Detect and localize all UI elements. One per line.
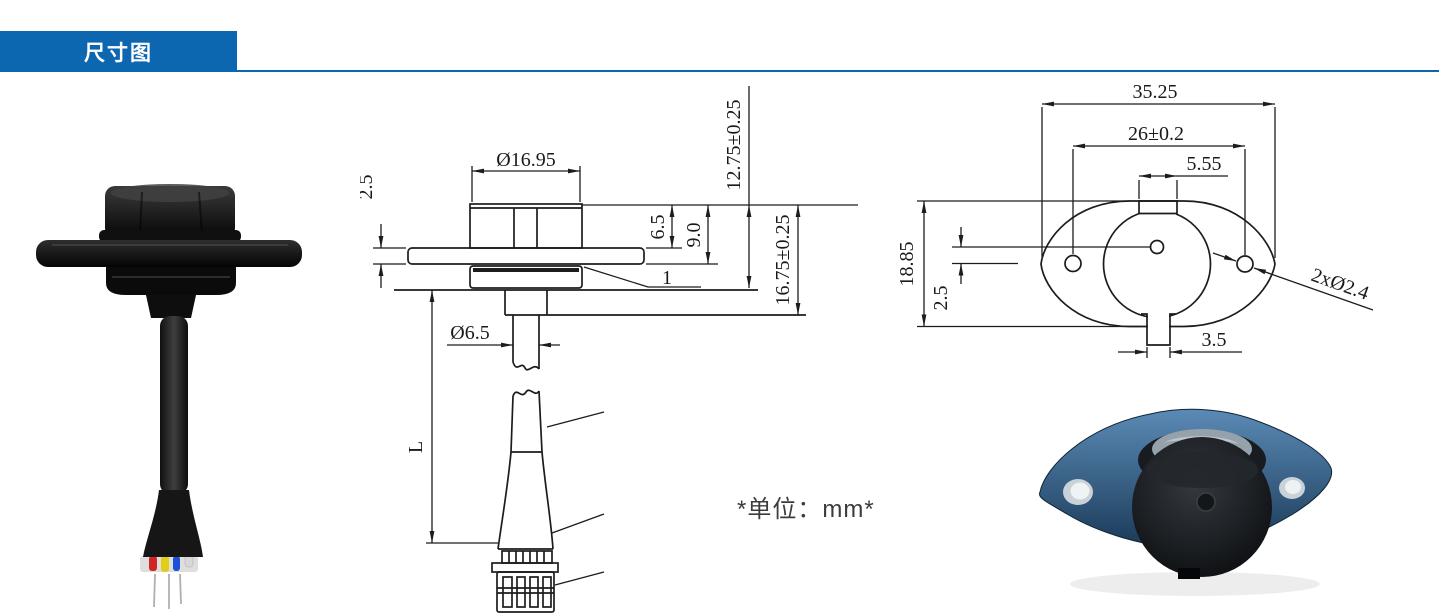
photo-cable: [160, 316, 188, 494]
top-view-drawing: 35.25 26±0.2 5.55 18.85 2.5: [900, 80, 1439, 380]
cable-leader: [547, 412, 604, 427]
photo-dimple: [1197, 493, 1215, 511]
photo-wire-red: [149, 556, 157, 571]
dim-height-to-mount: 12.75±0.25: [723, 100, 745, 191]
side-view-drawing: Ø16.95 2.5 6.5 9.0 12.75±0.25 16.75±0.25: [360, 80, 860, 614]
photo-pin: [154, 574, 155, 607]
flange-outline: [408, 248, 644, 264]
photo-bottom-notch: [1178, 568, 1200, 579]
sensor-photo: [36, 184, 302, 609]
section-tab: 尺寸图: [0, 31, 237, 72]
dim-cap-above-flange: 6.5: [647, 215, 669, 240]
dim-flange-height: 18.85: [900, 242, 918, 287]
dim-flange-width: 35.25: [1133, 81, 1178, 103]
sensor-top-photo: [1039, 409, 1331, 596]
photo-wire-yellow: [161, 556, 169, 572]
dim-cable-length: L: [405, 441, 427, 453]
dim-hole-offset: 2.5: [930, 286, 952, 311]
photo-boot: [143, 490, 203, 557]
boot-leader: [552, 514, 604, 533]
dim-head-height: 9.0: [683, 223, 705, 248]
connector-leader: [555, 572, 604, 585]
connector-outline: [492, 551, 558, 612]
dim-cap-diameter: Ø16.95: [496, 149, 555, 171]
dim-notch-width: 5.55: [1187, 153, 1222, 175]
dim-tab-width: 3.5: [1202, 329, 1227, 351]
cable-break-upper: [513, 362, 539, 370]
photo-pin: [180, 574, 181, 604]
photo-body: [106, 267, 236, 295]
flange-outline-top: [1041, 201, 1275, 327]
dim-height-total: 16.75±0.25: [772, 215, 794, 306]
section-title: 尺寸图: [84, 37, 153, 67]
product-photo-top: [1025, 392, 1355, 614]
photo-hole-left-inner: [1071, 483, 1090, 500]
photo-wire-blue: [173, 556, 180, 571]
dim-stem-diameter: Ø6.5: [450, 322, 489, 344]
dim-hole-spacing: 26±0.2: [1128, 123, 1184, 145]
photo-head-sheen: [1146, 452, 1258, 488]
cable-break-lower: [513, 390, 539, 396]
side-view-outline: [394, 204, 806, 612]
photo-hole-right-inner: [1285, 480, 1301, 494]
label-gasket-item: 1: [662, 267, 672, 289]
product-photo-side: [25, 160, 355, 614]
photo-cap-top: [111, 184, 229, 202]
strain-relief-outline: [498, 452, 553, 549]
page: 尺寸图: [0, 0, 1439, 614]
dim-flange-thickness: 2.5: [360, 175, 377, 200]
unit-note: *单位：mm*: [737, 489, 875, 524]
photo-neck: [146, 295, 196, 318]
